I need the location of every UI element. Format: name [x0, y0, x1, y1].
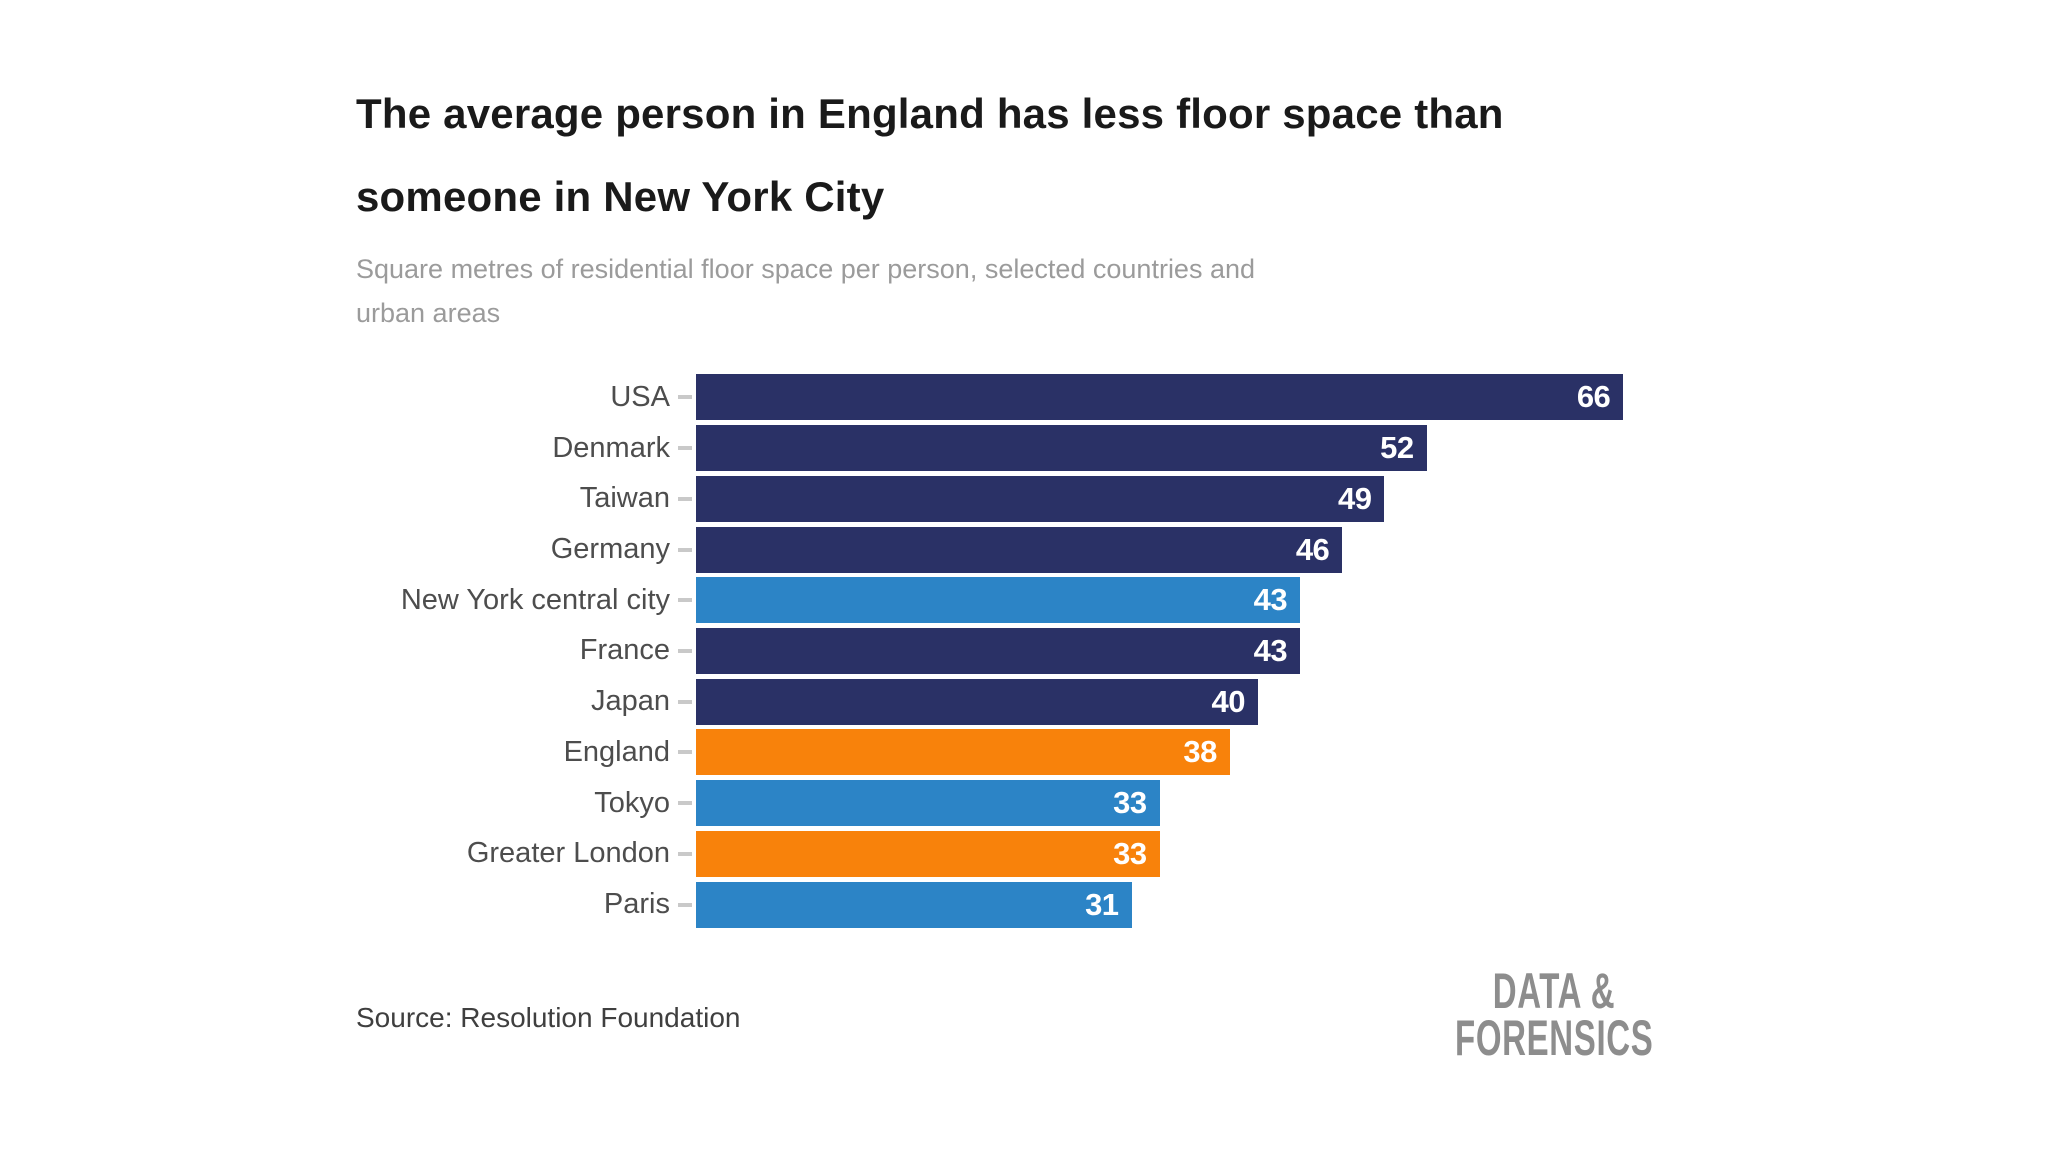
bar: 38 — [696, 729, 1230, 775]
bar: 33 — [696, 780, 1160, 826]
axis-tick — [678, 649, 692, 653]
category-label: USA — [0, 381, 670, 414]
chart-subtitle-line-1: Square metres of residential floor space… — [356, 247, 1255, 291]
bar: 43 — [696, 577, 1300, 623]
chart-card: The average person in England has less f… — [0, 0, 2048, 1152]
source-note: Source: Resolution Foundation — [356, 1002, 740, 1034]
axis-tick — [678, 598, 692, 602]
category-label: Denmark — [0, 432, 670, 465]
axis-tick — [678, 548, 692, 552]
axis-tick — [678, 446, 692, 450]
category-label: Taiwan — [0, 482, 670, 515]
bar-row: Greater London33 — [0, 828, 1623, 879]
bar: 66 — [696, 374, 1623, 420]
bar-row: Japan40 — [0, 676, 1623, 727]
bar-row: USA66 — [0, 372, 1623, 423]
bar-row: France43 — [0, 626, 1623, 677]
bar-row: England38 — [0, 727, 1623, 778]
value-label: 49 — [1338, 481, 1371, 517]
bar-row: Taiwan49 — [0, 473, 1623, 524]
chart-title-line-2: someone in New York City — [356, 155, 1504, 238]
value-label: 33 — [1113, 785, 1146, 821]
bar-row: Denmark52 — [0, 423, 1623, 474]
chart-title: The average person in England has less f… — [356, 72, 1504, 238]
logo-line-2: FORENSICS — [1455, 1015, 1653, 1062]
value-label: 43 — [1254, 582, 1287, 618]
value-label: 40 — [1212, 684, 1245, 720]
bar: 40 — [696, 679, 1258, 725]
category-label: England — [0, 736, 670, 769]
axis-tick — [678, 903, 692, 907]
axis-tick — [678, 497, 692, 501]
value-label: 33 — [1113, 836, 1146, 872]
axis-tick — [678, 700, 692, 704]
axis-tick — [678, 852, 692, 856]
axis-tick — [678, 395, 692, 399]
chart-subtitle: Square metres of residential floor space… — [356, 247, 1255, 335]
category-label: Japan — [0, 685, 670, 718]
value-label: 43 — [1254, 633, 1287, 669]
bar: 52 — [696, 425, 1427, 471]
value-label: 38 — [1183, 734, 1216, 770]
bar: 33 — [696, 831, 1160, 877]
category-label: France — [0, 634, 670, 667]
value-label: 52 — [1380, 430, 1413, 466]
category-label: Paris — [0, 888, 670, 921]
bar-row: New York central city43 — [0, 575, 1623, 626]
bar: 31 — [696, 882, 1132, 928]
data-forensics-logo: DATA & FORENSICS — [1455, 968, 1653, 1062]
axis-tick — [678, 750, 692, 754]
category-label: Germany — [0, 533, 670, 566]
axis-tick — [678, 801, 692, 805]
bar-row: Paris31 — [0, 879, 1623, 930]
chart-title-line-1: The average person in England has less f… — [356, 72, 1504, 155]
value-label: 66 — [1577, 379, 1610, 415]
category-label: Greater London — [0, 837, 670, 870]
bar: 43 — [696, 628, 1300, 674]
category-label: New York central city — [0, 584, 670, 617]
category-label: Tokyo — [0, 787, 670, 820]
bar-chart: USA66Denmark52Taiwan49Germany46New York … — [0, 372, 1623, 930]
value-label: 31 — [1085, 887, 1118, 923]
bar-row: Tokyo33 — [0, 778, 1623, 829]
bar-row: Germany46 — [0, 524, 1623, 575]
logo-line-1: DATA & — [1455, 968, 1653, 1015]
bar: 46 — [696, 527, 1342, 573]
chart-subtitle-line-2: urban areas — [356, 291, 1255, 335]
bar: 49 — [696, 476, 1384, 522]
value-label: 46 — [1296, 532, 1329, 568]
